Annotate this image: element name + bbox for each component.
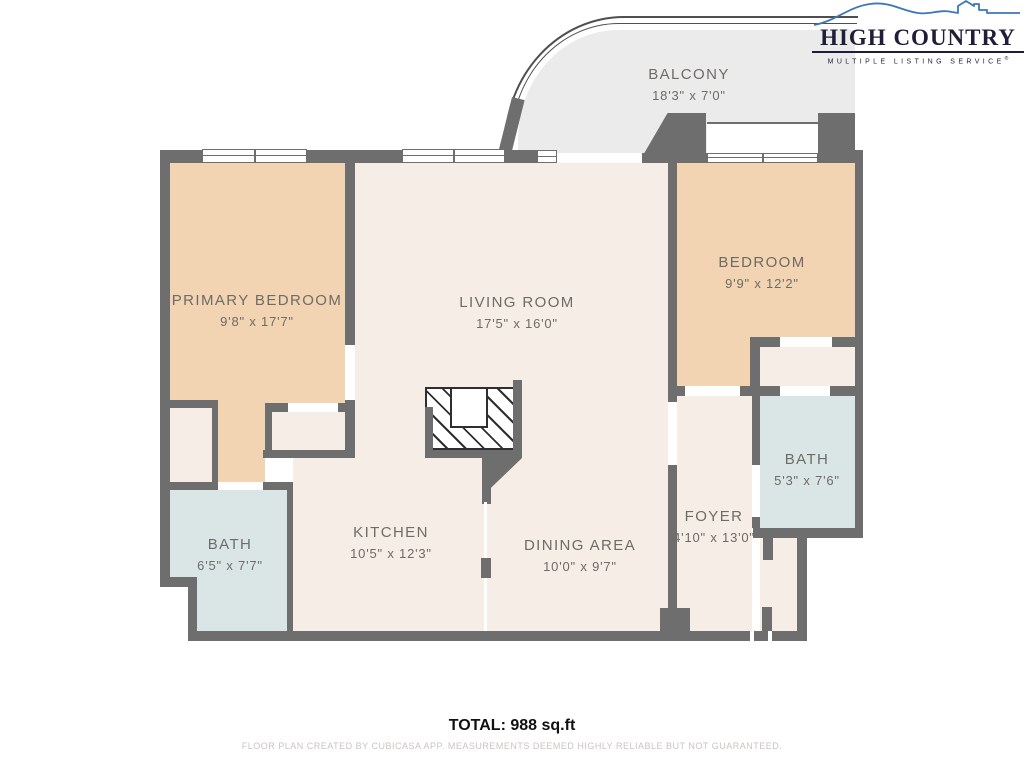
wall bbox=[265, 403, 272, 450]
room-dims: 4'10" x 13'0" bbox=[649, 530, 779, 545]
balcony-alcove bbox=[707, 122, 818, 153]
room-name: BALCONY bbox=[599, 66, 779, 83]
closet-floor bbox=[272, 412, 345, 450]
room-label-dining-area: DINING AREA 10'0" x 9'7" bbox=[500, 537, 660, 574]
room-name: KITCHEN bbox=[311, 524, 471, 541]
door-opening bbox=[768, 631, 772, 641]
wall bbox=[762, 607, 772, 631]
wall bbox=[660, 608, 690, 631]
closet-floor bbox=[170, 408, 212, 482]
closet-floor bbox=[760, 347, 855, 386]
room-label-bedroom: BEDROOM 9'9" x 12'2" bbox=[672, 254, 852, 291]
room-label-living-room: LIVING ROOM 17'5" x 16'0" bbox=[427, 294, 607, 331]
room-name: DINING AREA bbox=[500, 537, 660, 554]
window-symbol bbox=[707, 153, 818, 163]
room-floor-bedroom bbox=[677, 163, 855, 337]
total-area-label: TOTAL: 988 sq.ft bbox=[0, 717, 1024, 735]
disclaimer-text: FLOOR PLAN CREATED BY CUBICASA APP. MEAS… bbox=[0, 741, 1024, 751]
wall bbox=[425, 407, 433, 452]
wall bbox=[505, 150, 538, 163]
trademark-symbol: ® bbox=[1005, 56, 1009, 62]
door-opening bbox=[685, 386, 740, 396]
room-floor-bath-left bbox=[197, 577, 287, 631]
room-dims: 17'5" x 16'0" bbox=[427, 316, 607, 331]
room-label-foyer: FOYER 4'10" x 13'0" bbox=[649, 508, 779, 545]
room-name: BATH bbox=[170, 536, 290, 553]
room-label-kitchen: KITCHEN 10'5" x 12'3" bbox=[311, 524, 471, 561]
door-opening bbox=[218, 482, 263, 490]
wall bbox=[818, 113, 855, 157]
sliding-door-symbol bbox=[537, 150, 557, 163]
wall bbox=[481, 558, 491, 578]
wall bbox=[797, 538, 807, 641]
mountain-icon bbox=[812, 0, 1024, 26]
wall bbox=[170, 482, 218, 490]
wall bbox=[750, 337, 780, 347]
room-floor-primary-bedroom bbox=[170, 163, 348, 405]
room-label-primary-bedroom: PRIMARY BEDROOM 9'8" x 17'7" bbox=[157, 292, 357, 329]
room-dims: 9'9" x 12'2" bbox=[672, 276, 852, 291]
fireplace-firebox bbox=[450, 389, 488, 428]
wall bbox=[338, 403, 348, 412]
floor-plan: BALCONY 18'3" x 7'0" PRIMARY BEDROOM 9'8… bbox=[0, 0, 1024, 768]
wall bbox=[513, 380, 522, 458]
door-opening bbox=[780, 386, 830, 396]
wall bbox=[832, 337, 855, 347]
room-name: LIVING ROOM bbox=[427, 294, 607, 311]
wall bbox=[188, 631, 807, 641]
room-dims: 10'0" x 9'7" bbox=[500, 559, 660, 574]
room-dims: 18'3" x 7'0" bbox=[599, 88, 779, 103]
room-label-bath-left: BATH 6'5" x 7'7" bbox=[170, 536, 290, 573]
wall bbox=[642, 153, 707, 163]
logo-title: HIGH COUNTRY bbox=[812, 26, 1024, 53]
room-dims: 5'3" x 7'6" bbox=[748, 473, 866, 488]
wall bbox=[212, 400, 218, 490]
room-name: BATH bbox=[748, 451, 866, 468]
room-dims: 10'5" x 12'3" bbox=[311, 546, 471, 561]
room-name: BEDROOM bbox=[672, 254, 852, 271]
door-opening bbox=[750, 631, 754, 641]
wall bbox=[307, 150, 402, 163]
room-name: PRIMARY BEDROOM bbox=[157, 292, 357, 309]
wall bbox=[160, 153, 170, 587]
mls-logo: HIGH COUNTRY MULTIPLE LISTING SERVICE® bbox=[812, 0, 1024, 65]
room-name: FOYER bbox=[649, 508, 779, 525]
room-dims: 9'8" x 17'7" bbox=[157, 314, 357, 329]
window-symbol bbox=[202, 149, 307, 163]
wall bbox=[425, 450, 522, 458]
door-opening bbox=[345, 345, 355, 400]
wall bbox=[170, 400, 218, 408]
door-opening bbox=[668, 402, 677, 465]
room-label-balcony: BALCONY 18'3" x 7'0" bbox=[599, 66, 779, 103]
room-dims: 6'5" x 7'7" bbox=[170, 558, 290, 573]
room-label-bath-right: BATH 5'3" x 7'6" bbox=[748, 451, 866, 488]
primary-bedroom-corridor bbox=[218, 400, 265, 482]
logo-subtitle: MULTIPLE LISTING SERVICE® bbox=[812, 56, 1024, 65]
room-floor-bedroom bbox=[677, 337, 750, 386]
door-opening bbox=[780, 337, 832, 347]
door-opening bbox=[288, 403, 338, 412]
wall bbox=[263, 450, 355, 458]
window-symbol bbox=[402, 149, 505, 163]
